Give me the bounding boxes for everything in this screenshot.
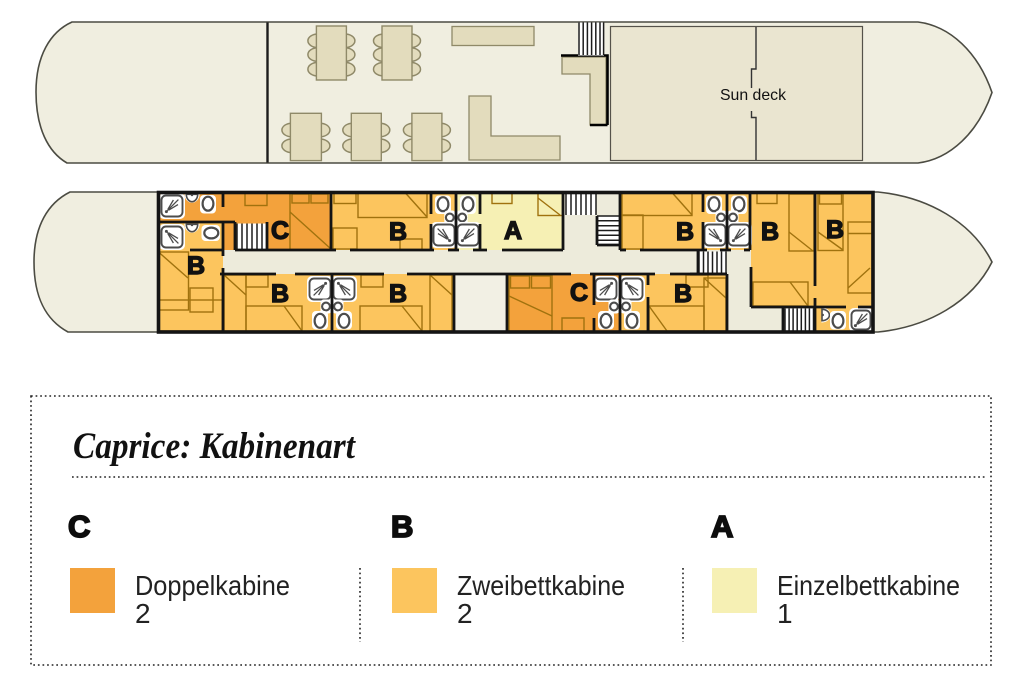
svg-text:B: B [389,280,407,308]
svg-text:B: B [391,509,413,544]
svg-text:B: B [826,216,844,244]
svg-text:Einzelbettkabine: Einzelbettkabine [777,570,960,601]
svg-text:B: B [674,280,692,308]
svg-text:1: 1 [777,598,793,629]
svg-text:A: A [711,509,733,544]
svg-text:2: 2 [457,598,473,629]
svg-text:Doppelkabine: Doppelkabine [135,570,290,601]
svg-text:B: B [676,218,694,246]
svg-text:C: C [570,279,588,307]
svg-text:C: C [68,509,90,544]
svg-text:B: B [389,218,407,246]
svg-text:C: C [271,217,289,245]
svg-text:B: B [187,252,205,280]
svg-text:A: A [504,217,522,245]
svg-text:Zweibettkabine: Zweibettkabine [457,570,625,601]
svg-text:Sun deck: Sun deck [720,87,787,104]
svg-text:B: B [761,218,779,246]
svg-text:2: 2 [135,598,151,629]
svg-text:Caprice: Kabinenart: Caprice: Kabinenart [73,426,357,467]
svg-text:B: B [271,280,289,308]
